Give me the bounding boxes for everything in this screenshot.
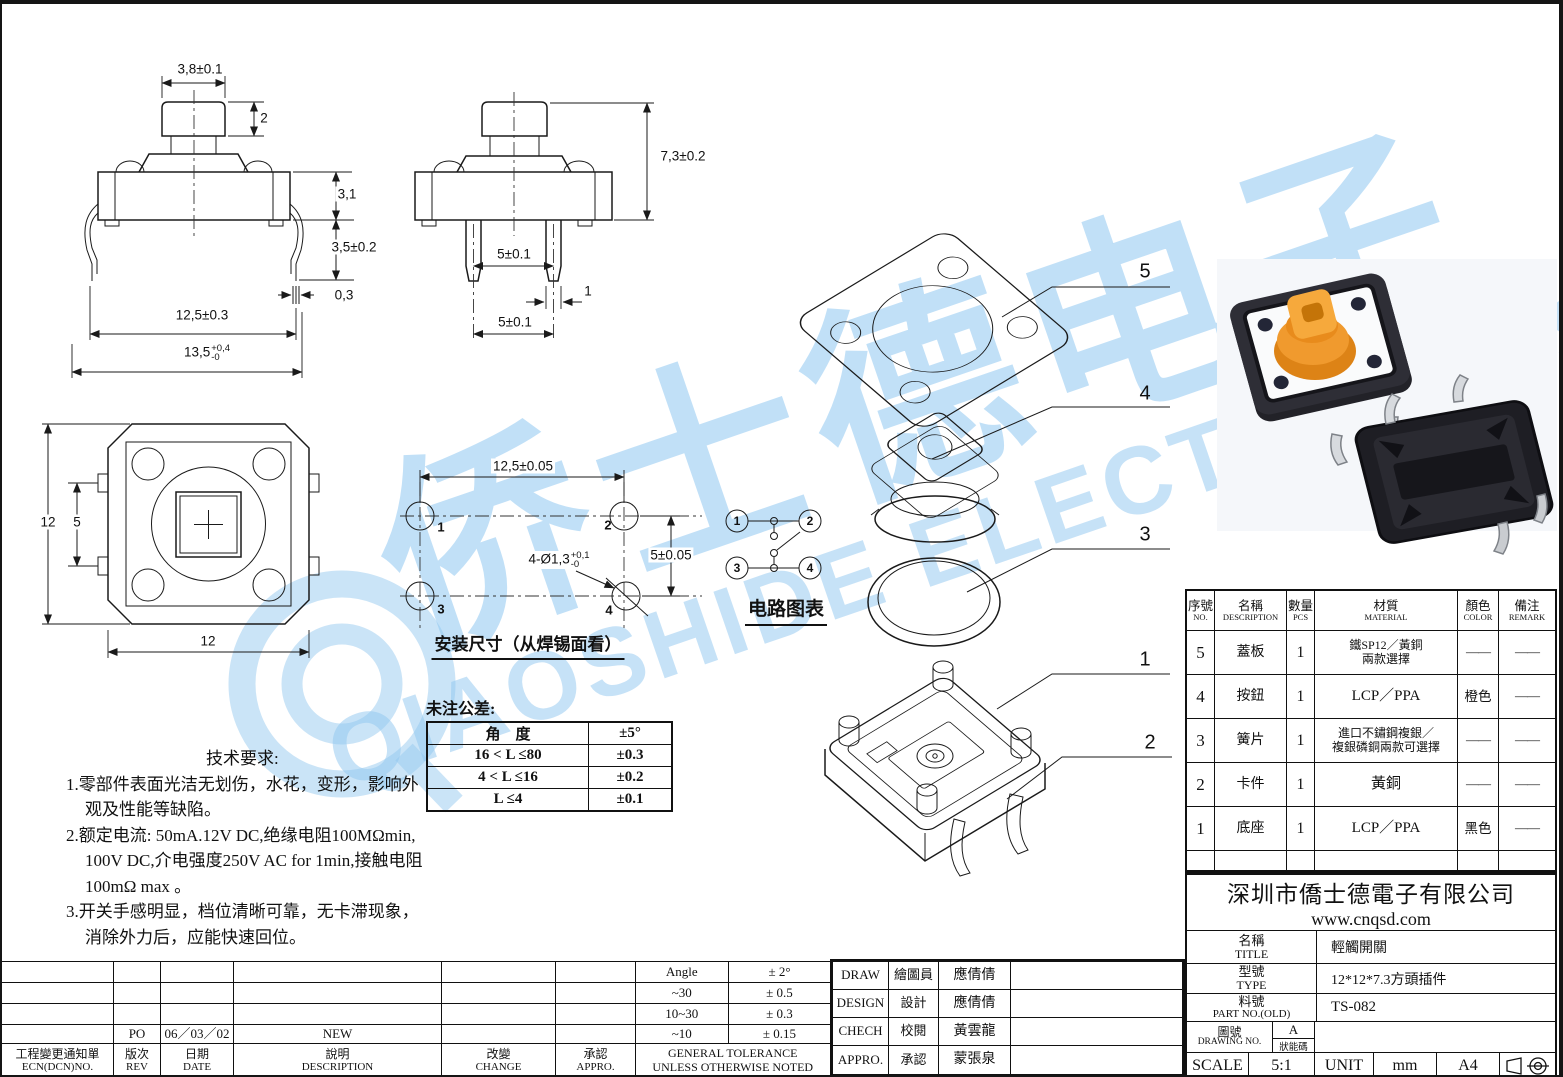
gen-tol-range: Angle bbox=[635, 962, 730, 983]
part-no: 3 bbox=[1187, 719, 1215, 763]
type-row: 型號TYPE 12*12*7.3方頭插件 bbox=[1187, 964, 1555, 994]
col-header: 序號 bbox=[1188, 599, 1213, 613]
col-header: ECN(DCN)NO. bbox=[22, 1061, 93, 1073]
approval-role-en: DESIGN bbox=[833, 990, 889, 1018]
approval-role-en: APPRO. bbox=[833, 1046, 889, 1074]
col-header: 版次 bbox=[125, 1048, 149, 1061]
field-label: PART NO.(OLD) bbox=[1213, 1009, 1291, 1021]
col-header: CHANGE bbox=[476, 1061, 522, 1073]
dim-pin-width: 1 bbox=[584, 284, 592, 299]
unit-label: UNIT bbox=[1315, 1053, 1374, 1077]
company-header: 深圳市僑士德電子有限公司 www.cnqsd.com bbox=[1187, 875, 1555, 931]
col-header: APPRO. bbox=[576, 1061, 614, 1073]
hole-note-base: 4-Ø1,3 bbox=[528, 552, 569, 567]
dim-top-bottom: 12 bbox=[198, 634, 217, 649]
field-label: TYPE bbox=[1237, 979, 1267, 992]
dim-cap-width: 3,8±0.1 bbox=[178, 62, 223, 77]
pad-2: 2 bbox=[604, 518, 611, 533]
part-remark: —— bbox=[1499, 807, 1555, 851]
part-qty: 1 bbox=[1287, 719, 1315, 763]
company-website: www.cnqsd.com bbox=[1311, 909, 1431, 930]
dim-pin-span-lower: 5±0.1 bbox=[496, 315, 534, 330]
drawing-no-value bbox=[1315, 1022, 1555, 1052]
field-label: 型號 bbox=[1238, 965, 1264, 979]
part-qty: 1 bbox=[1287, 763, 1315, 807]
field-label: DRAWING NO. bbox=[1198, 1038, 1262, 1048]
col-header: 數量 bbox=[1288, 599, 1313, 613]
pad-1: 1 bbox=[437, 520, 444, 535]
part-material: 兩款選擇 bbox=[1362, 653, 1410, 666]
paper-size: A4 bbox=[1437, 1053, 1500, 1077]
approval-role-en: CHECH bbox=[833, 1018, 889, 1046]
col-header: 材質 bbox=[1373, 599, 1398, 613]
terminal-4: 4 bbox=[807, 561, 814, 575]
part-color: 黑色 bbox=[1458, 807, 1499, 851]
part-color: —— bbox=[1458, 631, 1499, 675]
dim-mount-h-pitch: 12,5±0.05 bbox=[491, 459, 555, 474]
terminal-1: 1 bbox=[734, 514, 741, 528]
part-name: 底座 bbox=[1215, 807, 1287, 851]
scale-value: 5:1 bbox=[1249, 1053, 1315, 1077]
dim-pin-span-upper: 5±0.1 bbox=[495, 247, 533, 262]
part-material: LCP／PPA bbox=[1315, 807, 1458, 851]
gen-tol-range: ~10 bbox=[635, 1025, 730, 1044]
approval-name: 應倩倩 bbox=[939, 962, 1011, 990]
approval-role-cn: 繪圖員 bbox=[889, 962, 939, 990]
product-type: 12*12*7.3方頭插件 bbox=[1317, 964, 1555, 993]
tech-req-line: 100V DC,介电强度250V AC for 1min,接触电阻 bbox=[66, 848, 486, 874]
dim-pin-pitch: 12,5±0.3 bbox=[174, 308, 230, 323]
tol-value: ±0.2 bbox=[589, 767, 673, 789]
dim-top-tab: 5 bbox=[71, 515, 83, 530]
part-material: LCP／PPA bbox=[1315, 675, 1458, 719]
unit-value: mm bbox=[1374, 1053, 1437, 1077]
exploded-label-1: 1 bbox=[1139, 649, 1150, 672]
scale-row: SCALE 5:1 UNIT mm A4 bbox=[1187, 1053, 1555, 1077]
company-name: 深圳市僑士德電子有限公司 bbox=[1227, 875, 1515, 909]
revision-rev: PO bbox=[114, 1025, 161, 1044]
approval-role-cn: 承認 bbox=[889, 1046, 939, 1074]
approval-name: 蒙張泉 bbox=[939, 1046, 1011, 1074]
part-color: 橙色 bbox=[1458, 675, 1499, 719]
parts-table: 序號NO. 名稱DESCRIPTION 數量PCS 材質MATERIAL 顏色C… bbox=[1185, 589, 1557, 872]
col-header: DESCRIPTION bbox=[1223, 613, 1278, 623]
part-no: 1 bbox=[1187, 807, 1215, 851]
part-material: 黃銅 bbox=[1315, 763, 1458, 807]
col-header: NO. bbox=[1193, 613, 1207, 623]
col-header: PCS bbox=[1293, 613, 1308, 623]
state-code-label: 狀能碼 bbox=[1273, 1038, 1314, 1053]
gen-tol-range: ~30 bbox=[635, 983, 730, 1004]
exploded-view bbox=[793, 229, 1172, 876]
gen-tol-caption-line: UNLESS OTHERWISE NOTED bbox=[652, 1061, 813, 1074]
tech-req-line: 100mΩ max 。 bbox=[66, 874, 486, 900]
hole-lower-tol: -0 bbox=[571, 560, 590, 569]
col-header: MATERIAL bbox=[1365, 613, 1408, 623]
title-row: 名稱TITLE 輕觸開關 bbox=[1187, 931, 1555, 964]
gen-tol-caption-line: GENERAL TOLERANCE bbox=[668, 1047, 797, 1060]
col-header: 備注 bbox=[1514, 599, 1539, 613]
dim-overall-lower-tol: -0 bbox=[211, 353, 230, 362]
product-photo bbox=[1217, 259, 1557, 554]
dim-top-side: 12 bbox=[38, 515, 57, 530]
terminal-3: 3 bbox=[734, 561, 741, 575]
dim-overall-width: 13,5+0,4-0 bbox=[184, 344, 230, 362]
part-no-row: 料號PART NO.(OLD) TS-082 bbox=[1187, 994, 1555, 1022]
dim-overall-base: 13,5 bbox=[184, 345, 210, 360]
tol-value: ±0.1 bbox=[589, 789, 673, 812]
part-remark: —— bbox=[1499, 675, 1555, 719]
approvals-block: DRAW 繪圖員 應倩倩 DESIGN 設計 應倩倩 CHECH 校閱 黃雲龍 … bbox=[830, 959, 1185, 1077]
part-material: 鐵SP12／黃銅 bbox=[1349, 639, 1422, 652]
field-label: 名稱 bbox=[1238, 934, 1264, 948]
part-name: 簧片 bbox=[1215, 719, 1287, 763]
tech-req-title: 技术要求: bbox=[66, 746, 486, 772]
projection-symbol bbox=[1500, 1053, 1555, 1077]
field-label: 料號 bbox=[1238, 995, 1264, 1009]
part-no: 2 bbox=[1187, 763, 1215, 807]
col-header: DATE bbox=[183, 1061, 211, 1073]
mounting-caption: 安装尺寸（从焊锡面看） bbox=[432, 630, 625, 660]
field-label: TITLE bbox=[1235, 948, 1268, 961]
col-header: 名稱 bbox=[1238, 599, 1263, 613]
untoleranced-title: 未注公差: bbox=[426, 695, 673, 719]
approval-role-cn: 設計 bbox=[889, 990, 939, 1018]
tech-req-line: 2.额定电流: 50mA.12V DC,绝缘电阻100MΩmin, bbox=[66, 823, 486, 849]
col-header: 日期 bbox=[185, 1048, 209, 1061]
gen-tol-value: ± 0.5 bbox=[729, 983, 830, 1004]
col-header: REV bbox=[126, 1061, 148, 1073]
col-header: REMARK bbox=[1509, 613, 1545, 623]
part-name: 卡件 bbox=[1215, 763, 1287, 807]
circuit-caption: 电路图表 bbox=[745, 594, 827, 626]
approval-role-en: DRAW bbox=[833, 962, 889, 990]
title-block: 深圳市僑士德電子有限公司 www.cnqsd.com 名稱TITLE 輕觸開關 … bbox=[1185, 872, 1557, 1077]
gen-tol-value: ± 0.3 bbox=[729, 1004, 830, 1025]
revision-strip: Angle ± 2° ~30 ± 0.5 10~30 ± 0.3 PO 06／0… bbox=[2, 961, 830, 1077]
part-remark: —— bbox=[1499, 631, 1555, 675]
part-material: 複銀磷銅兩款可選擇 bbox=[1332, 741, 1440, 754]
part-number: TS-082 bbox=[1317, 994, 1555, 1021]
exploded-base bbox=[825, 661, 1045, 876]
col-header: 說明 bbox=[325, 1048, 349, 1061]
part-no: 4 bbox=[1187, 675, 1215, 719]
exploded-label-4: 4 bbox=[1139, 383, 1150, 406]
exploded-label-2: 2 bbox=[1144, 732, 1155, 755]
part-qty: 1 bbox=[1287, 675, 1315, 719]
gen-tol-value: ± 2° bbox=[729, 962, 830, 983]
tech-req-line: 消除外力后，应能快速回位。 bbox=[66, 925, 486, 951]
col-header: 工程變更通知單 bbox=[15, 1048, 99, 1061]
tol-range: 角 度 bbox=[427, 722, 589, 745]
pad-3: 3 bbox=[437, 602, 444, 617]
dim-total-height: 7,3±0.2 bbox=[661, 149, 706, 164]
approval-role-cn: 校閱 bbox=[889, 1018, 939, 1046]
approval-name: 應倩倩 bbox=[939, 990, 1011, 1018]
part-qty: 1 bbox=[1287, 807, 1315, 851]
dim-cap-height: 2 bbox=[260, 111, 268, 126]
drawing-sheet: 侨士德电子 QIAOSHIDE ELECTRONICS bbox=[0, 0, 1563, 1077]
gen-tol-range: 10~30 bbox=[635, 1004, 730, 1025]
dim-leg-length: 3,5±0.2 bbox=[330, 240, 379, 255]
col-header: 承認 bbox=[583, 1048, 607, 1061]
gen-tol-value: ± 0.15 bbox=[729, 1025, 830, 1044]
exploded-label-5: 5 bbox=[1139, 261, 1150, 284]
side-view bbox=[415, 92, 654, 340]
product-title: 輕觸開關 bbox=[1317, 931, 1555, 963]
col-header: 顏色 bbox=[1465, 599, 1490, 613]
tech-req-line: 观及性能等缺陷。 bbox=[66, 797, 486, 823]
part-remark: —— bbox=[1499, 763, 1555, 807]
part-no: 5 bbox=[1187, 631, 1215, 675]
tol-value: ±5° bbox=[589, 722, 673, 745]
part-name: 按鈕 bbox=[1215, 675, 1287, 719]
part-name: 蓋板 bbox=[1215, 631, 1287, 675]
dim-leg-thickness: 0,3 bbox=[333, 288, 356, 303]
technical-requirements: 技术要求: 1.零部件表面光洁无划伤，水花，变形，影响外 观及性能等缺陷。 2.… bbox=[66, 746, 486, 950]
revision-description: NEW bbox=[234, 1025, 442, 1044]
part-qty: 1 bbox=[1287, 631, 1315, 675]
part-color: —— bbox=[1458, 763, 1499, 807]
drawing-no-row: 圖號DRAWING NO. A 狀能碼 bbox=[1187, 1022, 1555, 1053]
top-view bbox=[42, 424, 319, 658]
general-tolerance-caption: GENERAL TOLERANCE UNLESS OTHERWISE NOTED bbox=[635, 1044, 831, 1077]
col-header: 改變 bbox=[486, 1048, 510, 1061]
scale-label: SCALE bbox=[1187, 1053, 1249, 1077]
front-view bbox=[72, 76, 354, 378]
pad-4: 4 bbox=[605, 603, 612, 618]
terminal-2: 2 bbox=[807, 514, 814, 528]
dim-mount-v-pitch: 5±0.05 bbox=[648, 548, 693, 563]
part-remark: —— bbox=[1499, 719, 1555, 763]
table-row: 角 度±5° bbox=[427, 722, 672, 745]
part-color: —— bbox=[1458, 719, 1499, 763]
tech-req-line: 1.零部件表面光洁无划伤，水花，变形，影响外 bbox=[66, 772, 486, 798]
drawing-rev: A bbox=[1273, 1022, 1314, 1038]
dim-body-height: 3,1 bbox=[336, 187, 359, 202]
col-header: DESCRIPTION bbox=[302, 1061, 374, 1073]
tol-value: ±0.3 bbox=[589, 745, 673, 767]
dim-hole-note: 4-Ø1,3+0,1-0 bbox=[526, 551, 591, 569]
col-header: COLOR bbox=[1464, 613, 1493, 623]
exploded-label-3: 3 bbox=[1139, 524, 1150, 547]
approval-name: 黃雲龍 bbox=[939, 1018, 1011, 1046]
part-material: 進口不鏽鋼複銀／ bbox=[1338, 727, 1434, 740]
revision-date: 06／03／02 bbox=[161, 1025, 234, 1044]
tech-req-line: 3.开关手感明显，档位清晰可靠，无卡滞现象， bbox=[66, 899, 486, 925]
